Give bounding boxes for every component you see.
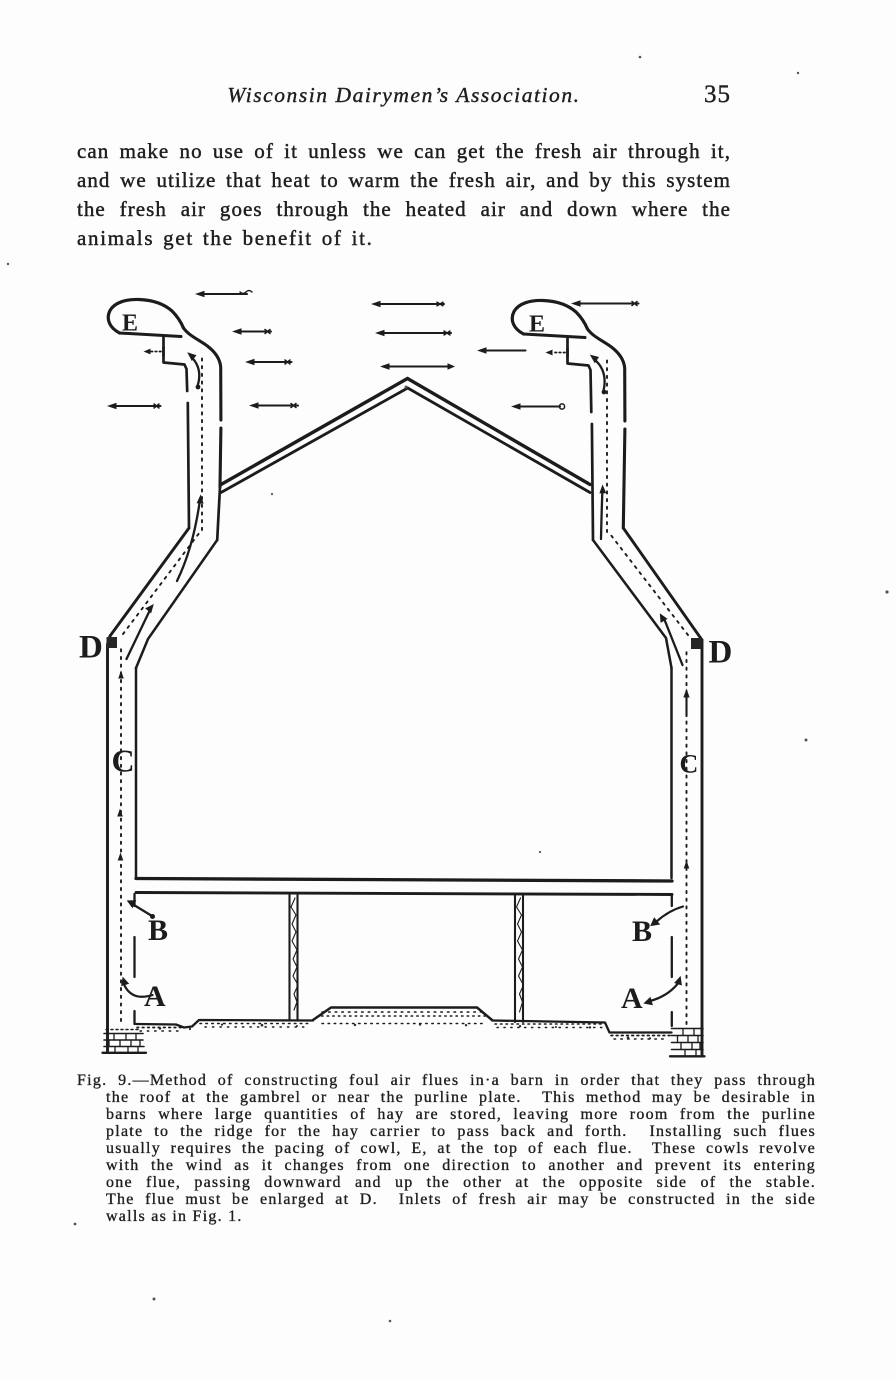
svg-text:A: A xyxy=(621,982,643,1015)
svg-text:D: D xyxy=(79,630,103,666)
svg-text:E: E xyxy=(122,311,138,337)
svg-text:D: D xyxy=(709,635,733,671)
svg-text:C: C xyxy=(112,743,135,779)
svg-text:C: C xyxy=(680,750,699,779)
svg-text:B: B xyxy=(632,915,652,948)
svg-text:E: E xyxy=(529,312,545,338)
svg-text:B: B xyxy=(148,914,168,947)
